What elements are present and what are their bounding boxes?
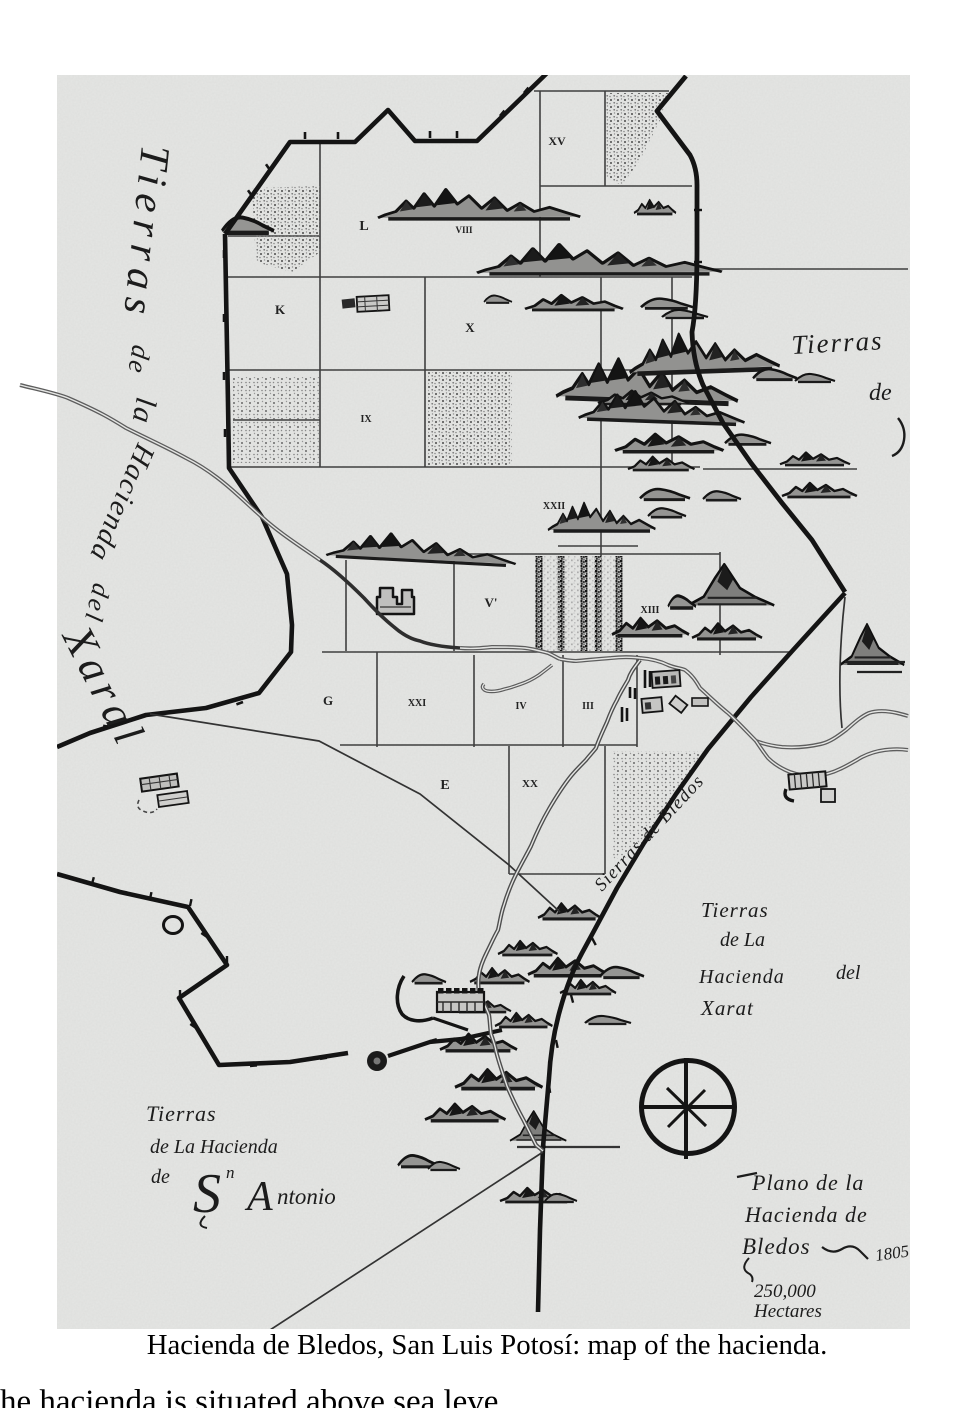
- svg-text:la: la: [125, 395, 162, 428]
- svg-text:G: G: [323, 693, 333, 708]
- svg-text:E: E: [440, 778, 449, 793]
- svg-text:XIII: XIII: [641, 605, 660, 616]
- svg-text:Tierras: Tierras: [701, 898, 769, 922]
- svg-text:Plano de la: Plano de la: [751, 1170, 864, 1195]
- svg-text:S: S: [193, 1163, 221, 1225]
- svg-text:XV: XV: [548, 134, 566, 148]
- svg-text:K: K: [275, 302, 286, 317]
- svg-text:Hacienda de Bledos, San Luis P: Hacienda de Bledos, San Luis Potosí: map…: [147, 1329, 828, 1361]
- svg-text:del: del: [836, 962, 861, 984]
- svg-text:Hectares: Hectares: [753, 1301, 822, 1322]
- svg-text:XXII: XXII: [543, 501, 565, 512]
- svg-text:X: X: [465, 320, 475, 335]
- svg-text:A: A: [244, 1174, 273, 1220]
- svg-text:250,000: 250,000: [754, 1281, 816, 1302]
- svg-text:ntonio: ntonio: [277, 1184, 336, 1209]
- svg-text:de La Hacienda: de La Hacienda: [150, 1136, 278, 1158]
- svg-text:XX: XX: [522, 778, 538, 790]
- svg-text:Hacienda: Hacienda: [698, 966, 785, 988]
- svg-text:de La: de La: [720, 929, 765, 951]
- svg-text:de: de: [122, 343, 157, 377]
- svg-text:IV: IV: [515, 701, 527, 712]
- svg-text:de: de: [151, 1166, 170, 1188]
- svg-text:Bledos: Bledos: [742, 1234, 811, 1259]
- svg-text:Tierras: Tierras: [791, 325, 884, 360]
- svg-text:de: de: [869, 380, 892, 406]
- svg-text:XXI: XXI: [408, 698, 426, 709]
- svg-text:n: n: [226, 1163, 235, 1182]
- svg-text:L: L: [359, 219, 368, 234]
- svg-text:IX: IX: [360, 414, 372, 425]
- svg-text:III: III: [582, 701, 594, 712]
- svg-text:V': V': [485, 595, 498, 610]
- svg-text:Hacienda de: Hacienda de: [744, 1202, 868, 1227]
- svg-text:Xarat: Xarat: [700, 996, 754, 1020]
- svg-text:VIII: VIII: [455, 225, 473, 235]
- svg-text:he hacienda is situated above: he hacienda is situated above sea leve: [0, 1384, 498, 1408]
- svg-text:Tierras: Tierras: [146, 1101, 217, 1126]
